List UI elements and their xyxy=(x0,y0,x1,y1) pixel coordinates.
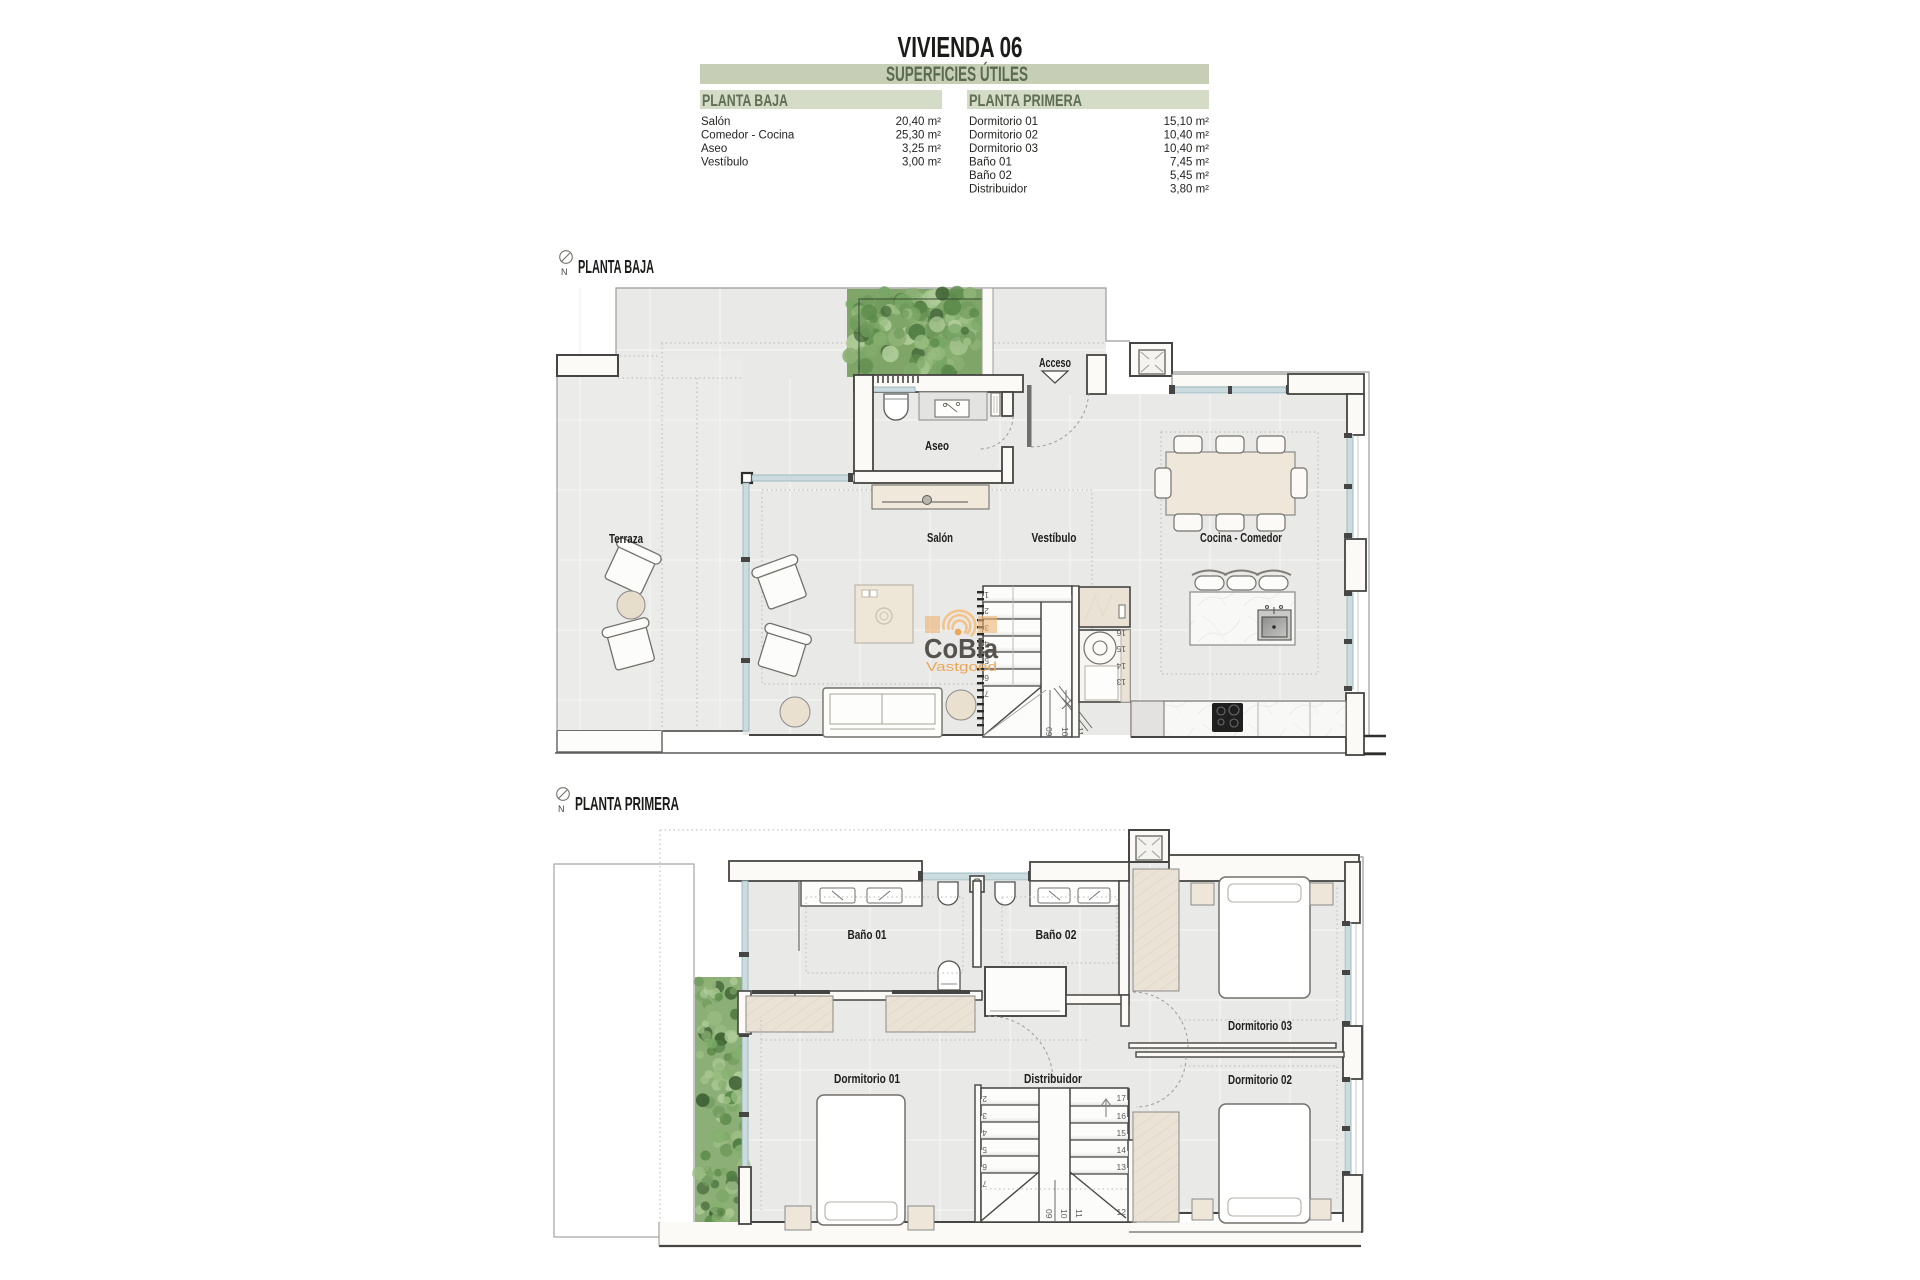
svg-text:3,00 m²: 3,00 m² xyxy=(902,157,941,169)
svg-text:Dormitorio 02: Dormitorio 02 xyxy=(969,130,1038,142)
svg-text:15: 15 xyxy=(1116,644,1126,654)
svg-text:3,25 m²: 3,25 m² xyxy=(902,143,941,155)
svg-text:15: 15 xyxy=(1117,1128,1127,1138)
svg-text:Salón: Salón xyxy=(927,531,953,545)
svg-text:2: 2 xyxy=(984,606,989,616)
svg-text:7: 7 xyxy=(982,1179,987,1189)
svg-text:Dormitorio 02: Dormitorio 02 xyxy=(1228,1073,1292,1087)
svg-text:10: 10 xyxy=(1059,1209,1069,1219)
svg-text:Baño 01: Baño 01 xyxy=(848,928,887,942)
svg-text:17: 17 xyxy=(1117,1093,1127,1103)
svg-text:14: 14 xyxy=(1117,1145,1127,1155)
svg-text:Baño 01: Baño 01 xyxy=(969,157,1012,169)
svg-text:3: 3 xyxy=(982,1111,987,1121)
svg-text:Distribuidor: Distribuidor xyxy=(1024,1072,1082,1086)
svg-text:Salón: Salón xyxy=(701,116,730,128)
svg-text:3,80 m²: 3,80 m² xyxy=(1170,184,1209,196)
svg-text:Comedor - Cocina: Comedor - Cocina xyxy=(701,130,795,142)
svg-text:13: 13 xyxy=(1117,1162,1127,1172)
svg-text:7,45 m²: 7,45 m² xyxy=(1170,157,1209,169)
svg-text:13: 13 xyxy=(1116,677,1126,687)
svg-text:10: 10 xyxy=(1060,727,1070,737)
svg-text:6: 6 xyxy=(982,1162,987,1172)
svg-text:Distribuidor: Distribuidor xyxy=(969,184,1027,196)
svg-text:Vastgoed: Vastgoed xyxy=(926,659,997,674)
svg-text:Baño 02: Baño 02 xyxy=(1036,928,1077,942)
svg-text:Vestíbulo: Vestíbulo xyxy=(1032,531,1077,545)
svg-text:PLANTA PRIMERA: PLANTA PRIMERA xyxy=(575,794,679,814)
svg-text:16: 16 xyxy=(1117,1111,1127,1121)
svg-text:Terraza: Terraza xyxy=(609,532,644,546)
svg-text:6: 6 xyxy=(984,673,989,683)
svg-text:7: 7 xyxy=(984,689,989,699)
svg-text:12: 12 xyxy=(1117,1207,1127,1217)
svg-text:Dormitorio 03: Dormitorio 03 xyxy=(1228,1019,1292,1033)
svg-text:09: 09 xyxy=(1044,727,1054,737)
svg-text:Baño 02: Baño 02 xyxy=(969,170,1012,182)
svg-text:PLANTA BAJA: PLANTA BAJA xyxy=(578,257,654,277)
svg-text:11: 11 xyxy=(1074,1209,1084,1218)
svg-text:PLANTA BAJA: PLANTA BAJA xyxy=(702,92,788,110)
svg-text:5: 5 xyxy=(982,1145,987,1155)
svg-text:Aseo: Aseo xyxy=(701,143,727,155)
svg-text:16: 16 xyxy=(1116,628,1126,638)
svg-text:25,30 m²: 25,30 m² xyxy=(896,130,942,142)
svg-text:N: N xyxy=(558,804,565,814)
svg-text:VIVIENDA 06: VIVIENDA 06 xyxy=(898,32,1023,64)
svg-text:1: 1 xyxy=(984,590,989,600)
svg-text:Acceso: Acceso xyxy=(1039,356,1071,370)
svg-text:14: 14 xyxy=(1116,661,1126,671)
svg-text:Dormitorio 01: Dormitorio 01 xyxy=(834,1072,900,1086)
svg-text:15,10 m²: 15,10 m² xyxy=(1164,116,1210,128)
svg-text:Cocina - Comedor: Cocina - Comedor xyxy=(1200,531,1282,545)
svg-text:10,40 m²: 10,40 m² xyxy=(1164,130,1210,142)
svg-text:2: 2 xyxy=(982,1094,987,1104)
svg-text:09: 09 xyxy=(1044,1209,1054,1219)
svg-text:10,40 m²: 10,40 m² xyxy=(1164,143,1210,155)
svg-text:20,40 m²: 20,40 m² xyxy=(896,116,942,128)
svg-text:N: N xyxy=(561,267,568,277)
svg-text:Vestíbulo: Vestíbulo xyxy=(701,157,748,169)
svg-text:SUPERFICIES ÚTILES: SUPERFICIES ÚTILES xyxy=(886,62,1028,86)
svg-text:4: 4 xyxy=(982,1128,987,1138)
svg-text:5,45 m²: 5,45 m² xyxy=(1170,170,1209,182)
svg-text:Dormitorio 01: Dormitorio 01 xyxy=(969,116,1038,128)
svg-text:PLANTA PRIMERA: PLANTA PRIMERA xyxy=(969,92,1082,110)
svg-text:Dormitorio 03: Dormitorio 03 xyxy=(969,143,1038,155)
svg-text:Aseo: Aseo xyxy=(925,439,949,453)
